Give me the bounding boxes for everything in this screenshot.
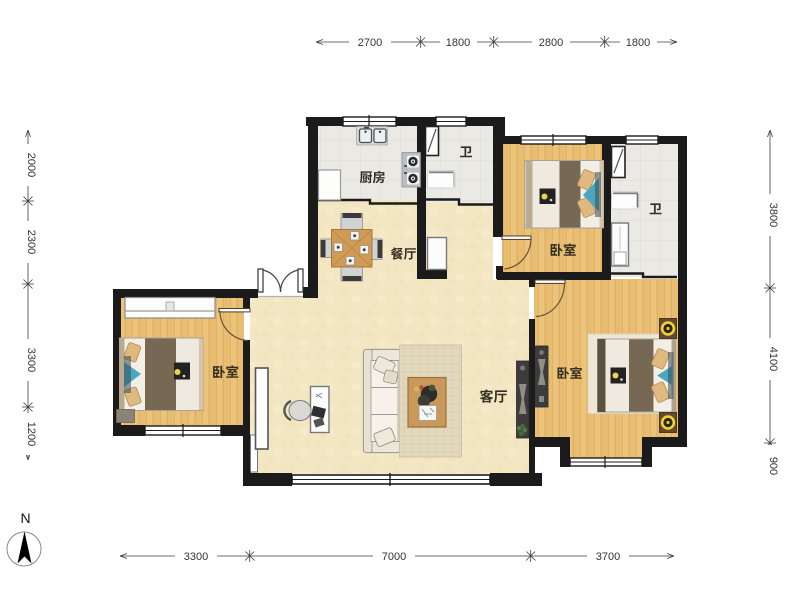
- svg-text:1200: 1200: [25, 422, 37, 446]
- svg-text:3300: 3300: [184, 551, 208, 563]
- svg-text:2700: 2700: [358, 37, 382, 49]
- svg-text:3300: 3300: [25, 348, 37, 372]
- svg-text:2000: 2000: [25, 153, 37, 177]
- svg-text:3700: 3700: [596, 551, 620, 563]
- svg-text:N: N: [20, 510, 30, 526]
- svg-text:3800: 3800: [767, 203, 779, 227]
- svg-text:1800: 1800: [446, 37, 470, 49]
- svg-text:900: 900: [767, 457, 779, 475]
- svg-text:7000: 7000: [382, 551, 406, 563]
- svg-text:2300: 2300: [25, 230, 37, 254]
- svg-text:2800: 2800: [539, 37, 563, 49]
- svg-text:1800: 1800: [626, 37, 650, 49]
- svg-text:4100: 4100: [767, 347, 779, 371]
